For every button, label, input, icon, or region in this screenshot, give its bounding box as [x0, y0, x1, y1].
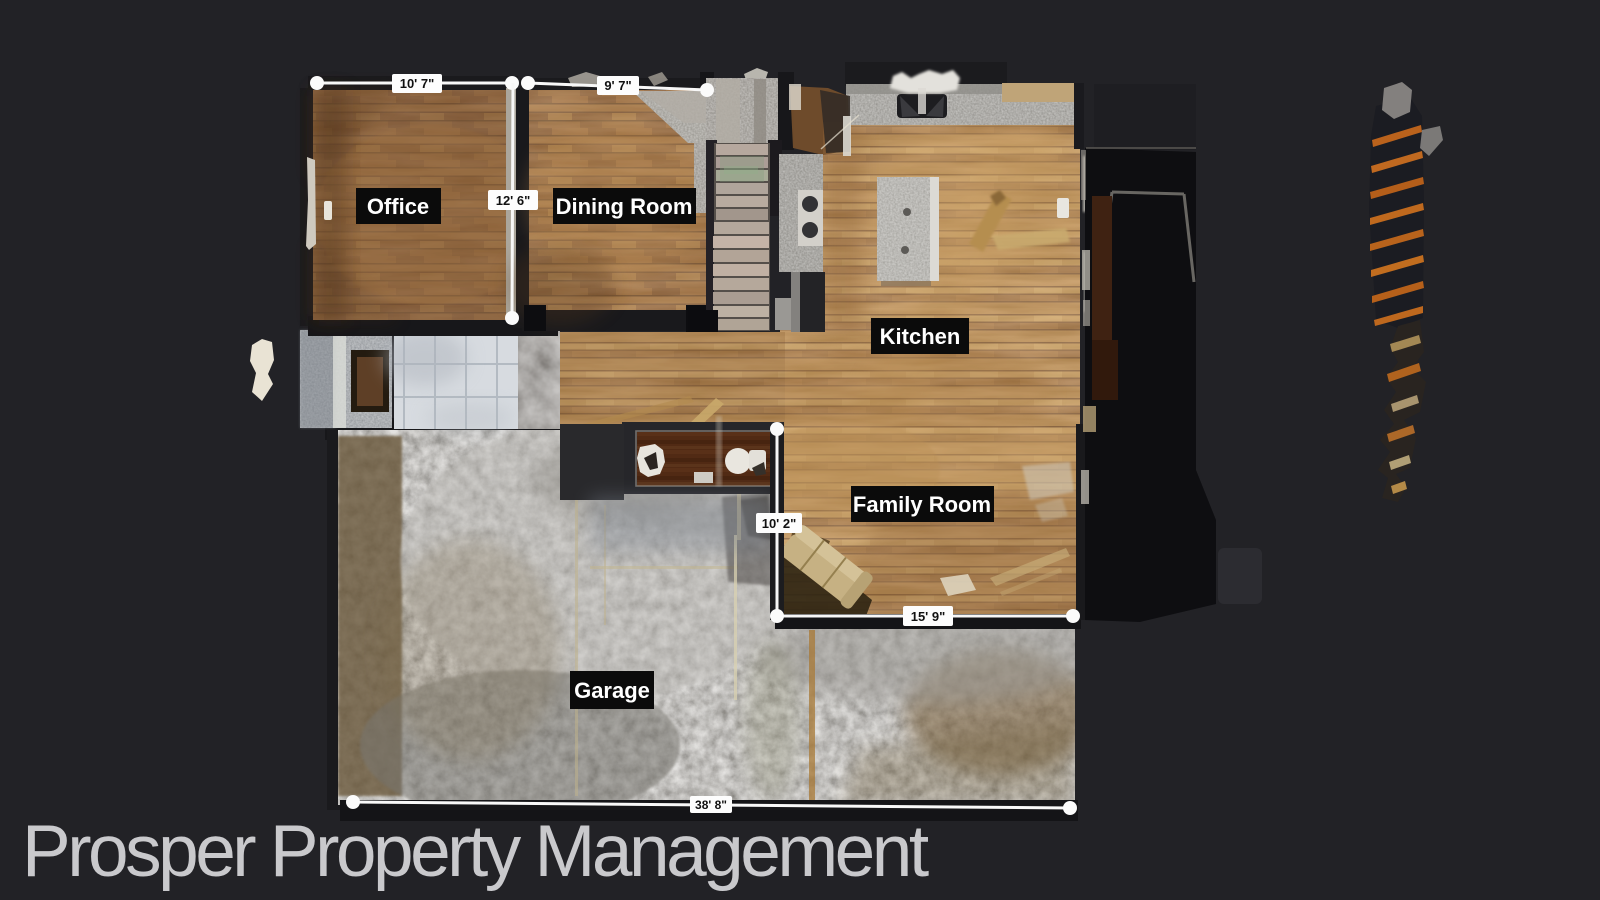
svg-text:15' 9": 15' 9" [911, 609, 946, 624]
svg-text:38' 8": 38' 8" [695, 798, 727, 812]
svg-text:Dining Room: Dining Room [556, 194, 693, 219]
svg-text:10' 7": 10' 7" [400, 76, 435, 91]
svg-text:Kitchen: Kitchen [880, 324, 961, 349]
svg-text:12' 6": 12' 6" [496, 193, 531, 208]
svg-text:10' 2": 10' 2" [762, 516, 797, 531]
svg-text:Garage: Garage [574, 678, 650, 703]
svg-text:Family Room: Family Room [853, 492, 991, 517]
svg-text:Office: Office [367, 194, 429, 219]
svg-text:Prosper Property Management: Prosper Property Management [22, 811, 929, 892]
svg-text:9' 7": 9' 7" [604, 78, 631, 93]
